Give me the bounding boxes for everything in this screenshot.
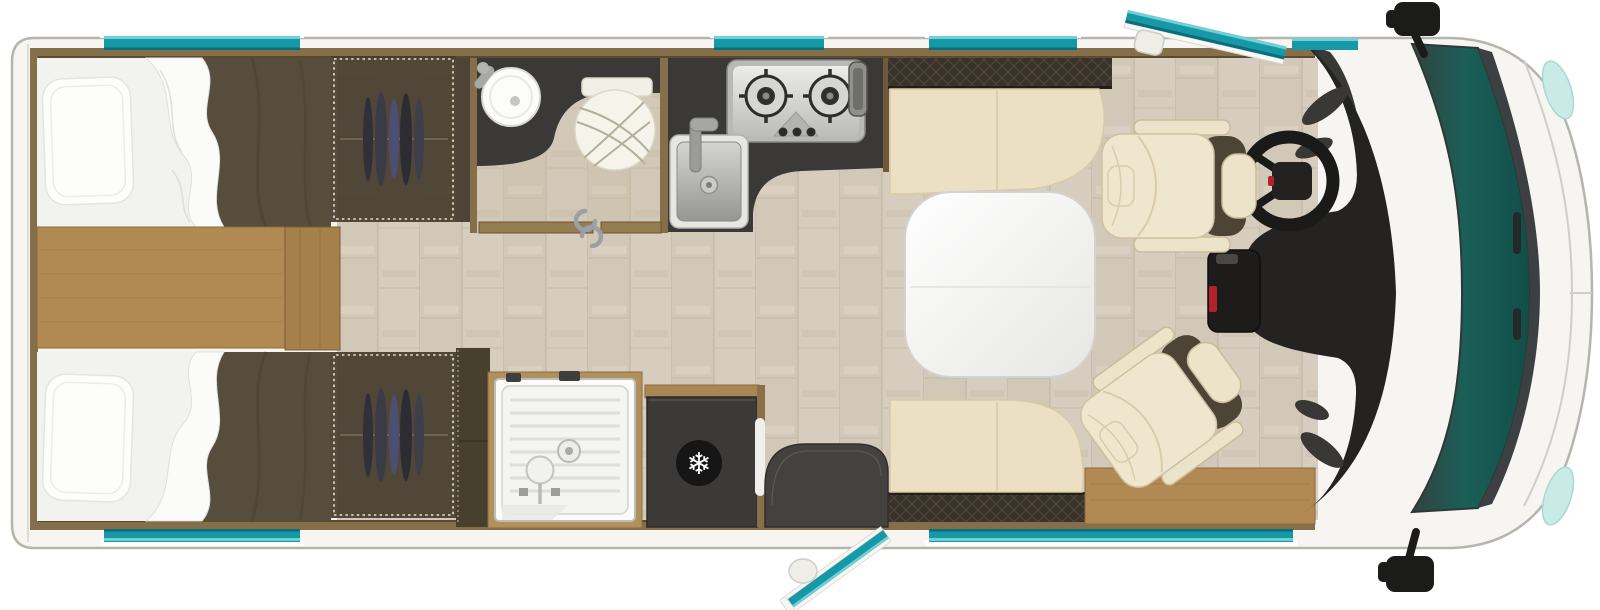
heater-panel <box>849 62 867 116</box>
kitchen-sink <box>670 118 748 228</box>
bedside-platform <box>37 227 340 350</box>
wardrobe-top <box>331 56 456 222</box>
refrigerator: ❄ <box>645 385 759 527</box>
shower-room <box>488 371 642 528</box>
dinette-table <box>905 192 1095 377</box>
window-kitchen <box>710 32 828 50</box>
cabinet-bottom <box>456 348 490 527</box>
entry-mat <box>765 444 888 527</box>
bed-bottom <box>37 352 331 521</box>
floorplan-canvas: ❄ <box>0 0 1600 610</box>
center-console <box>1208 250 1260 332</box>
entrance-door-handle <box>789 559 817 583</box>
bench-backrest-bottom <box>888 492 1102 522</box>
door-swing <box>755 418 765 496</box>
shower-door-clip <box>559 371 580 381</box>
bedside-chest <box>285 227 340 350</box>
washroom-wall-right <box>660 58 668 233</box>
motorhome-floorplan: ❄ <box>0 0 1600 610</box>
wiper-mark <box>1513 308 1521 340</box>
bench-backrest-top <box>888 58 1112 89</box>
window-dinette-bottom <box>925 529 1297 546</box>
window-dinette-top <box>925 32 1081 50</box>
window-bedroom-bottom <box>100 529 304 546</box>
wardrobe-bottom <box>331 352 456 518</box>
washroom <box>470 58 668 246</box>
shower-door-clip <box>506 373 521 382</box>
window-cab-top <box>1292 38 1358 50</box>
two-burner-hob <box>727 60 865 142</box>
wall-top-edge <box>35 56 1315 58</box>
wiper-mark <box>1513 212 1521 254</box>
window-bedroom-top <box>100 32 304 50</box>
toilet <box>575 78 655 170</box>
dinette <box>888 58 1112 522</box>
bed-top <box>37 58 331 227</box>
snowflake-icon: ❄ <box>686 448 711 481</box>
washroom-door-frame <box>601 222 661 233</box>
driver-seat <box>1102 120 1256 252</box>
pillow <box>42 76 134 205</box>
bench-seat-bottom <box>890 400 1083 492</box>
console-red-accent <box>1209 286 1217 312</box>
cabinet-top <box>456 58 472 222</box>
